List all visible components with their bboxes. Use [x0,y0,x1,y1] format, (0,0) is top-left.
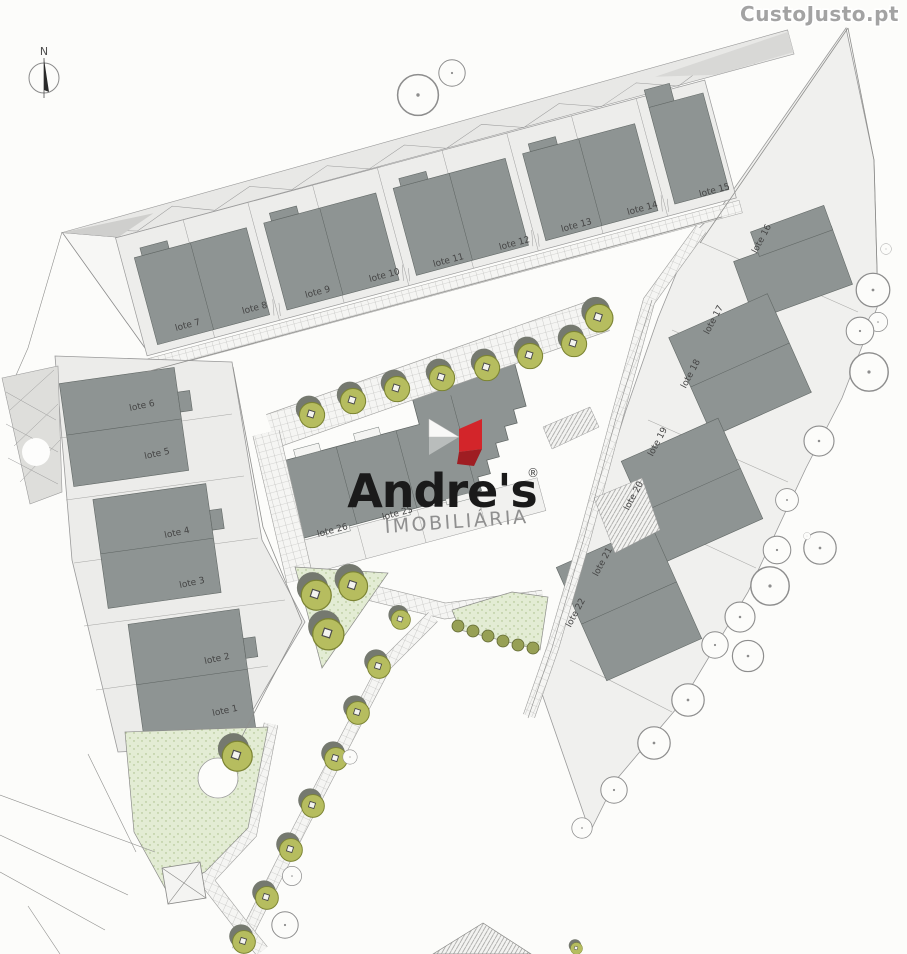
tree-icon [439,60,465,86]
tree-icon [343,750,357,764]
tree-icon [804,426,834,456]
tree-icon [364,649,390,678]
north-arrow: N [29,45,59,98]
left-slope-hatch [2,366,62,504]
tree-icon [763,536,791,564]
tree-icon [803,532,810,539]
tree-icon [881,244,892,255]
tree-icon [850,353,888,391]
north-label: N [40,45,48,58]
scanned-site-plan: lote 7 lote 8 lote 9 lote 10 lote 11 lot… [0,0,907,954]
tree-icon [846,317,874,345]
site-plan-svg: lote 7 lote 8 lote 9 lote 10 lote 11 lot… [0,0,907,954]
tree-icon [856,273,890,307]
logo-registered-mark: ® [527,466,539,480]
tree-icon [751,567,789,605]
tree-icon [638,727,670,759]
tree-icon [572,818,592,838]
utility-box [162,862,206,904]
tree-icon [725,602,755,632]
tree-icon [672,684,704,716]
tree-icon [601,777,627,803]
tree-icon [776,489,799,512]
tree-icon [272,912,298,938]
watermark-custojusto: CustoJusto.pt [740,2,899,26]
tree-icon [569,939,583,954]
tree-icon [702,632,728,658]
tree-icon [282,866,301,885]
roof-hatched [433,923,531,954]
tree-icon [398,75,439,116]
tree-icon [732,640,763,671]
